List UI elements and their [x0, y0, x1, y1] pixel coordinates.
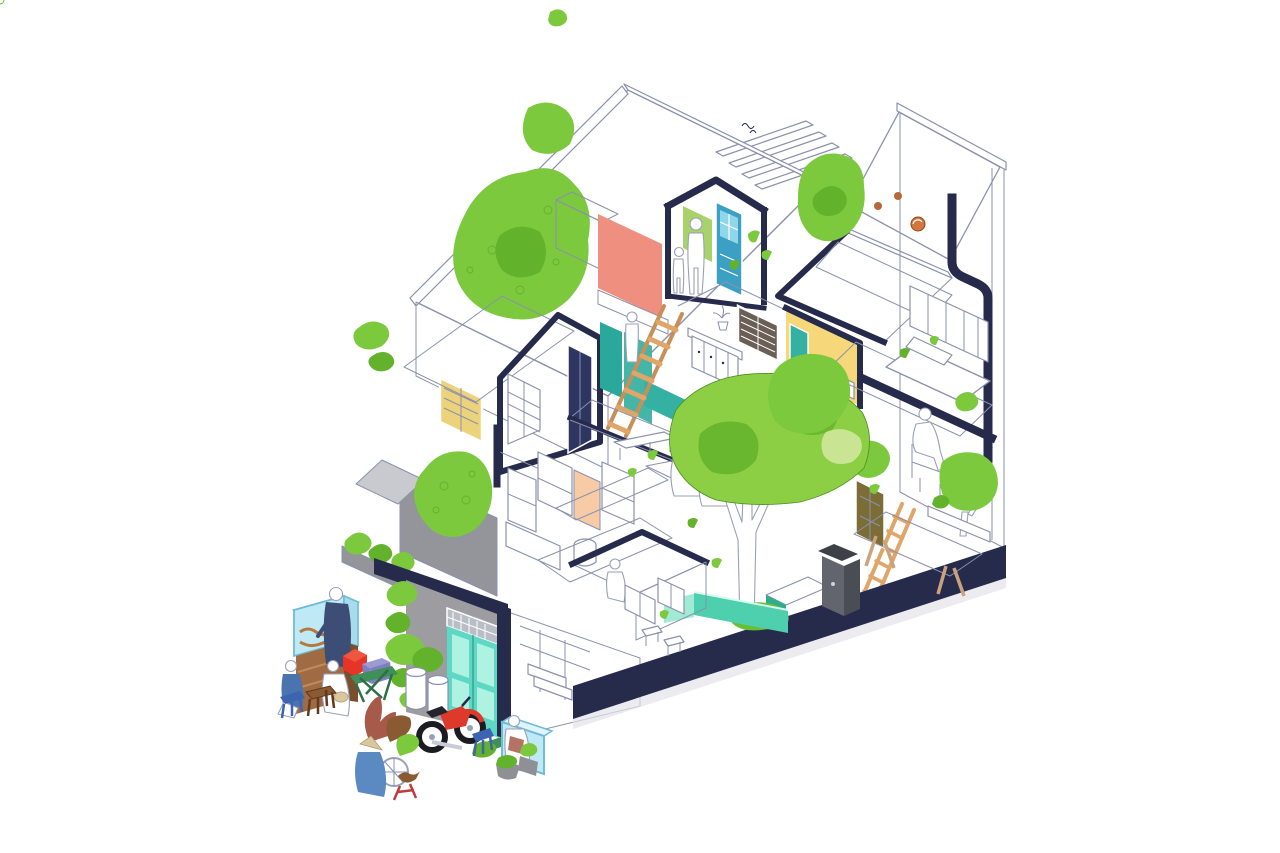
figure-climbing: [626, 312, 639, 362]
background: [0, 0, 1280, 853]
axonometric-house-illustration: [0, 0, 1280, 853]
blue-door: [716, 202, 742, 296]
illustration-canvas: [0, 0, 1280, 853]
